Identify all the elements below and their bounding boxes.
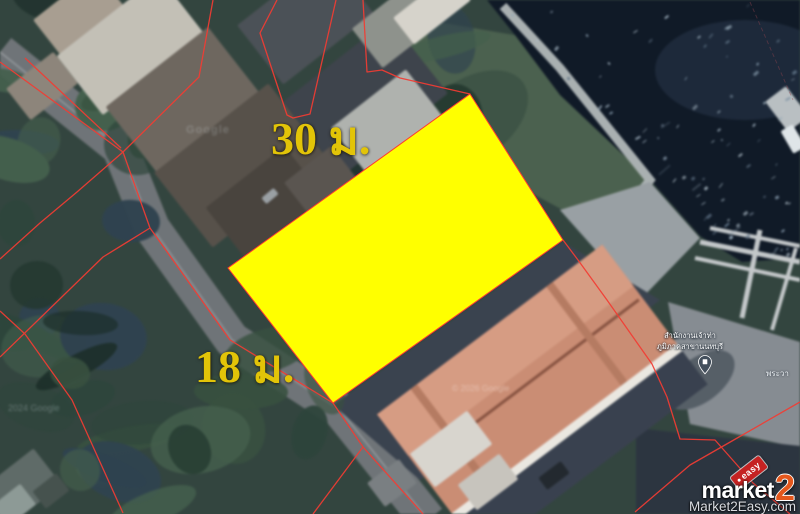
- brand-logo: easy market 2 Market2Easy.com: [668, 452, 798, 514]
- dimension-label-width: 30 ม.: [271, 116, 370, 162]
- poi-label-line1: สำนักงานเจ้าท่า: [640, 330, 740, 341]
- road-label: พระวา: [766, 367, 789, 380]
- faint-boundary-line: [750, 2, 793, 100]
- satellite-map: Google 2024 Google © 2026 Google สำนัก: [0, 0, 800, 514]
- brand-number: 2: [775, 474, 795, 501]
- brand-name: market: [702, 480, 774, 501]
- poi-label-line2: ภูมิภาคสาขานนทบุรี: [640, 341, 740, 352]
- website-label: Market2Easy.com: [689, 499, 796, 514]
- boundary-overlay: [0, 0, 800, 514]
- map-pin-icon: [699, 356, 712, 374]
- brand-wordmark: market 2: [702, 474, 795, 501]
- dimension-label-depth: 18 ม.: [195, 344, 294, 390]
